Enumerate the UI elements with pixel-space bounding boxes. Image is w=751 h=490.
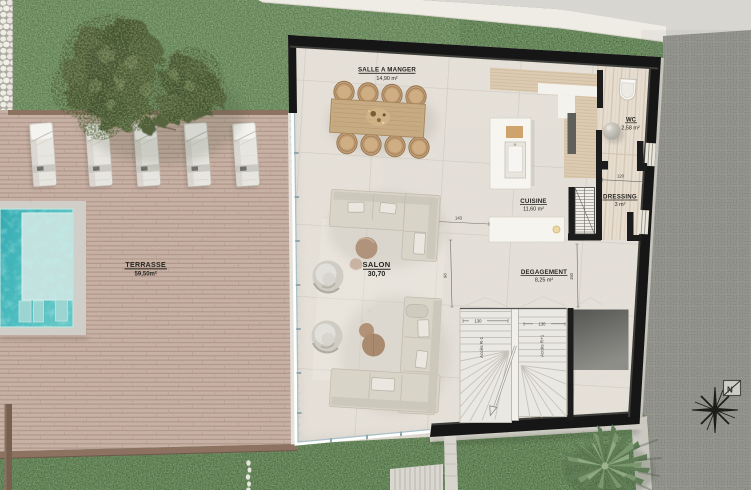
svg-text:143: 143 xyxy=(455,216,463,221)
svg-text:8,25 m²: 8,25 m² xyxy=(535,277,553,283)
svg-text:SALLE A MANGER: SALLE A MANGER xyxy=(358,67,416,74)
svg-text:90: 90 xyxy=(368,309,372,313)
svg-text:1.1: 1.1 xyxy=(362,299,367,303)
svg-text:30,70: 30,70 xyxy=(368,271,386,278)
svg-text:150: 150 xyxy=(569,272,574,280)
svg-text:3 m²: 3 m² xyxy=(615,202,626,208)
svg-text:2.0: 2.0 xyxy=(360,319,365,323)
svg-text:DRESSING: DRESSING xyxy=(603,193,637,200)
svg-text:CUISINE: CUISINE xyxy=(520,198,547,205)
svg-text:14,90 m²: 14,90 m² xyxy=(376,76,397,82)
svg-text:N: N xyxy=(727,386,733,395)
svg-text:130: 130 xyxy=(539,322,547,327)
svg-text:Accès R-1: Accès R-1 xyxy=(479,336,484,358)
svg-text:TERRASSE: TERRASSE xyxy=(125,262,166,269)
svg-text:11,60 m²: 11,60 m² xyxy=(523,206,544,212)
svg-text:DEGAGEMENT: DEGAGEMENT xyxy=(521,269,567,276)
svg-text:130: 130 xyxy=(475,319,483,324)
svg-text:Accès R+1: Accès R+1 xyxy=(540,334,545,357)
svg-text:59,50m²: 59,50m² xyxy=(135,271,157,278)
svg-text:2,58 m²: 2,58 m² xyxy=(621,125,639,131)
svg-text:SALON: SALON xyxy=(362,260,390,269)
svg-text:120: 120 xyxy=(617,174,625,179)
